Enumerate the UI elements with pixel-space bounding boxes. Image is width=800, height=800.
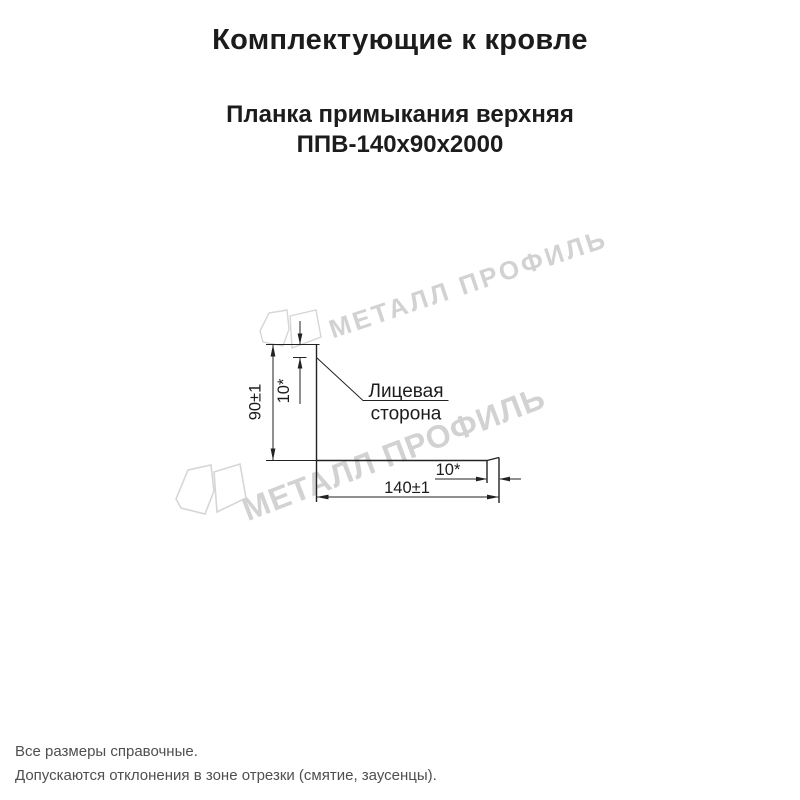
dim-right-flange-label: 10* bbox=[436, 461, 461, 479]
face-side-callout: Лицевая сторона bbox=[317, 358, 449, 425]
dim-height-label: 90±1 bbox=[247, 384, 265, 421]
dim-width: 140±1 bbox=[317, 479, 500, 499]
face-side-label-line2: сторона bbox=[371, 404, 442, 425]
dim-right-flange: 10* bbox=[435, 461, 521, 481]
profile-drawing-svg: 90±1 10* Лицевая сторона 10* bbox=[0, 0, 800, 800]
dim-top-flange: 10* bbox=[275, 321, 302, 404]
drawing-sheet: МЕТАЛЛ ПРОФИЛЬ МЕТАЛЛ ПРОФИЛЬ Комплектую… bbox=[0, 0, 800, 800]
dim-height: 90±1 bbox=[247, 345, 276, 461]
dim-top-flange-label: 10* bbox=[275, 378, 293, 403]
dim-width-label: 140±1 bbox=[384, 479, 430, 497]
face-side-label-line1: Лицевая bbox=[368, 381, 443, 402]
